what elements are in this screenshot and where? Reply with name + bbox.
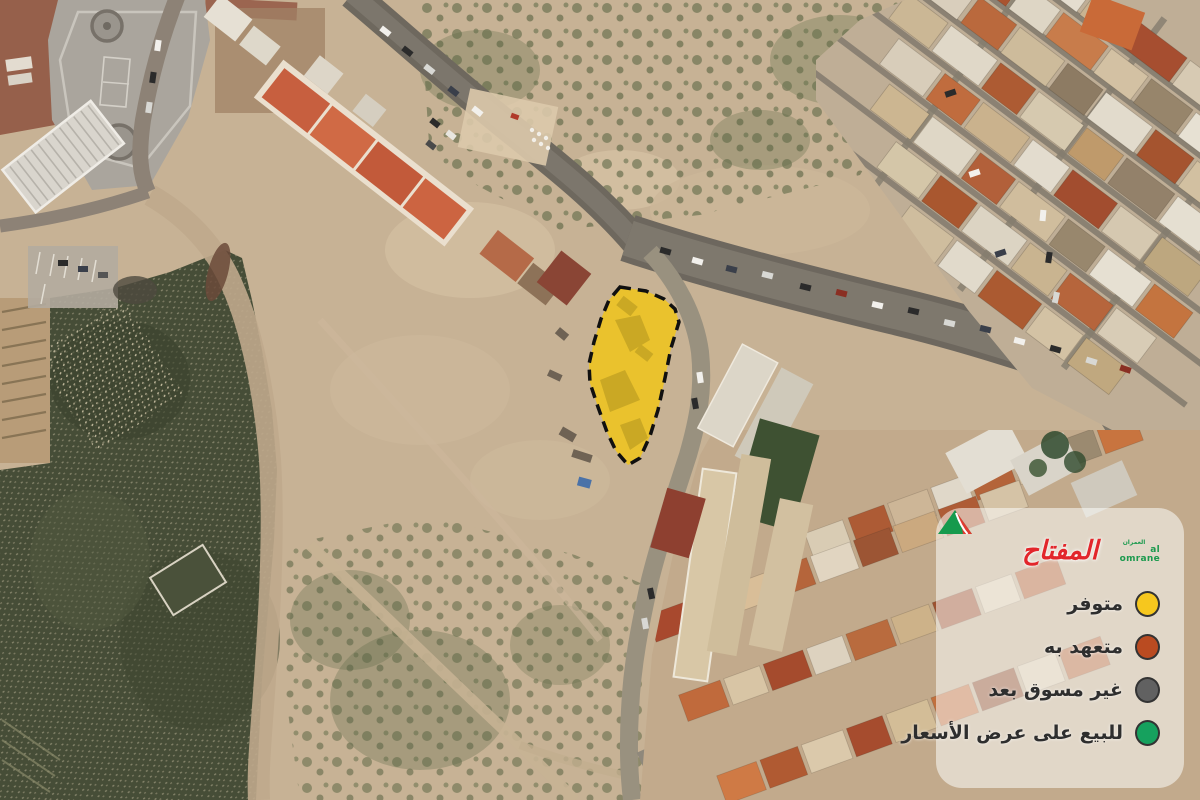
al-omrane-triangle-icon [936, 508, 972, 535]
legend-panel: العمران al omrane المفتاح متوفر متعهد به… [936, 508, 1184, 788]
legend-label: غير مسوق بعد [988, 679, 1123, 701]
legend-item-available: متوفر [950, 582, 1160, 625]
swatch-committed [1135, 634, 1160, 660]
legend-label: متعهد به [1044, 636, 1123, 658]
legend-item-committed: متعهد به [950, 625, 1160, 668]
legend-item-not-marketed: غير مسوق بعد [950, 668, 1160, 711]
swatch-available [1135, 591, 1160, 617]
al-omrane-logo: العمران al omrane [1108, 539, 1160, 564]
swatch-for-sale [1135, 720, 1160, 746]
swatch-not-marketed [1135, 677, 1160, 703]
legend-label: متوفر [1067, 593, 1123, 615]
legend-item-for-sale: للبيع على عرض الأسعار [950, 711, 1160, 754]
map-screenshot: العمران al omrane المفتاح متوفر متعهد به… [0, 0, 1200, 800]
legend-header: العمران al omrane المفتاح [950, 520, 1160, 582]
legend-title: المفتاح [1022, 536, 1098, 566]
logo-latin-text: al omrane [1108, 546, 1160, 564]
legend-label: للبيع على عرض الأسعار [901, 722, 1123, 744]
